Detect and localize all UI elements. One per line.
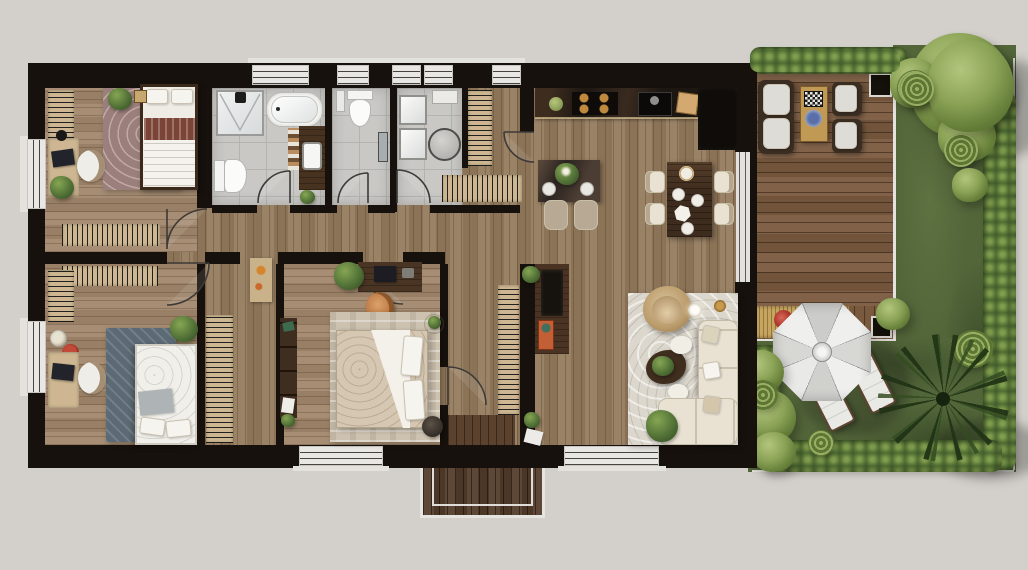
- side-dish: [670, 336, 692, 354]
- house-plant-small: [281, 414, 295, 427]
- radiator: [48, 270, 74, 322]
- plate: [542, 182, 556, 196]
- porch-step-line: [432, 468, 533, 506]
- house-plant: [524, 412, 540, 428]
- fruit-bowl: [549, 97, 563, 111]
- dining-chair: [645, 171, 665, 193]
- hedge-top-overlap: [750, 50, 900, 72]
- kitchen-tall-unit: [698, 88, 738, 150]
- pillow: [165, 419, 192, 439]
- entry-bench: [442, 175, 522, 202]
- house-plant: [170, 316, 198, 342]
- dryer: [399, 128, 427, 160]
- pillow: [400, 335, 423, 377]
- radiator: [62, 224, 160, 246]
- media-unit-orange: [538, 320, 554, 350]
- bed-throw: [144, 118, 195, 140]
- dining-chair: [714, 171, 734, 193]
- shelf-paper: [281, 397, 295, 414]
- dining-chair: [574, 200, 598, 230]
- sofa-pillow: [702, 395, 721, 414]
- pillow: [139, 416, 166, 436]
- counter-light-strip: [535, 117, 700, 119]
- house-plant: [108, 88, 132, 110]
- pillow: [146, 89, 168, 104]
- house-plant-small: [428, 316, 441, 329]
- armchair-seat: [652, 296, 682, 324]
- dining-chair: [544, 200, 568, 230]
- house-plant: [50, 176, 74, 199]
- vanity-sink: [302, 142, 322, 170]
- radiator: [62, 266, 158, 286]
- wc-mirror-cabinet: [378, 132, 388, 162]
- coffee-table-plant: [652, 356, 674, 376]
- bed-duvet: [144, 140, 195, 186]
- tv-panel: [541, 270, 563, 316]
- sofa-pillow: [702, 361, 721, 380]
- floor-plan-stage: [0, 0, 1028, 570]
- house-plant: [522, 266, 540, 283]
- side-table-dark: [422, 416, 443, 437]
- fruit-plate: [50, 330, 67, 347]
- faucet: [650, 96, 659, 105]
- laptop: [51, 363, 75, 381]
- plate: [580, 182, 594, 196]
- shower-head: [235, 92, 246, 103]
- pillow: [403, 379, 426, 420]
- pillow: [171, 89, 193, 104]
- tub-drain: [276, 107, 280, 111]
- desk-lamp: [56, 130, 67, 141]
- laptop: [51, 149, 75, 168]
- house-plant: [300, 190, 315, 204]
- towel-shelf: [288, 128, 299, 170]
- desk-chair: [77, 150, 105, 182]
- plate: [681, 222, 694, 235]
- radiator-entry: [468, 90, 492, 166]
- rose-bush-overlap: [900, 72, 934, 106]
- pendant-lamp: [688, 303, 702, 317]
- bed-throw: [138, 388, 174, 415]
- bouquet-flowers: [560, 166, 572, 177]
- hob: [572, 92, 618, 115]
- sofa-pillow: [700, 324, 720, 344]
- radiator-hall: [498, 285, 519, 415]
- wardrobe: [206, 315, 233, 443]
- tree-overlap: [928, 40, 1014, 132]
- shelf-green-item: [282, 321, 294, 332]
- house-plant: [334, 262, 364, 290]
- plate: [691, 194, 704, 207]
- wc-sink: [336, 90, 345, 112]
- washer: [399, 95, 427, 125]
- cutting-board: [676, 92, 700, 116]
- decor-disc: [714, 300, 726, 312]
- dining-chair: [645, 203, 665, 225]
- utility-shelf: [432, 90, 458, 104]
- desk-items: [402, 268, 414, 278]
- utility-table: [428, 128, 461, 161]
- dining-chair: [714, 203, 734, 225]
- laptop: [374, 266, 396, 282]
- floor-plant: [646, 410, 678, 442]
- side-tray: [134, 90, 147, 103]
- plate: [672, 188, 685, 201]
- plate-gold-rim: [679, 166, 694, 181]
- desk-chair: [78, 362, 106, 394]
- console-table: [250, 258, 272, 302]
